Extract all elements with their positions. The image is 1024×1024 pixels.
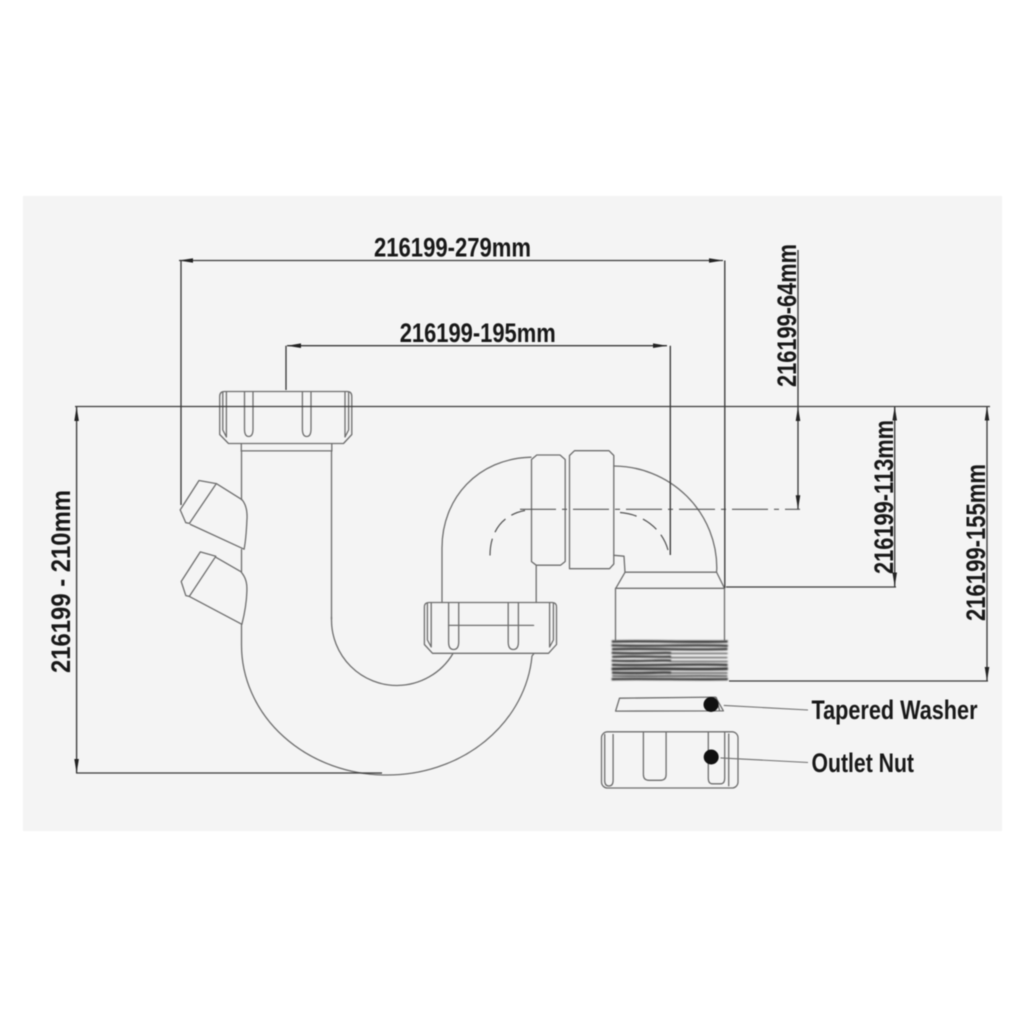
svg-text:216199-279mm: 216199-279mm (374, 233, 531, 263)
svg-text:216199-155mm: 216199-155mm (961, 464, 991, 621)
svg-text:216199-195mm: 216199-195mm (400, 318, 556, 348)
svg-text:216199 - 210mm: 216199 - 210mm (46, 490, 76, 673)
svg-text:216199-113mm: 216199-113mm (869, 420, 899, 574)
svg-text:Tapered Washer: Tapered Washer (812, 695, 978, 725)
svg-text:Outlet Nut: Outlet Nut (812, 748, 915, 778)
svg-text:216199-64mm: 216199-64mm (772, 244, 802, 387)
